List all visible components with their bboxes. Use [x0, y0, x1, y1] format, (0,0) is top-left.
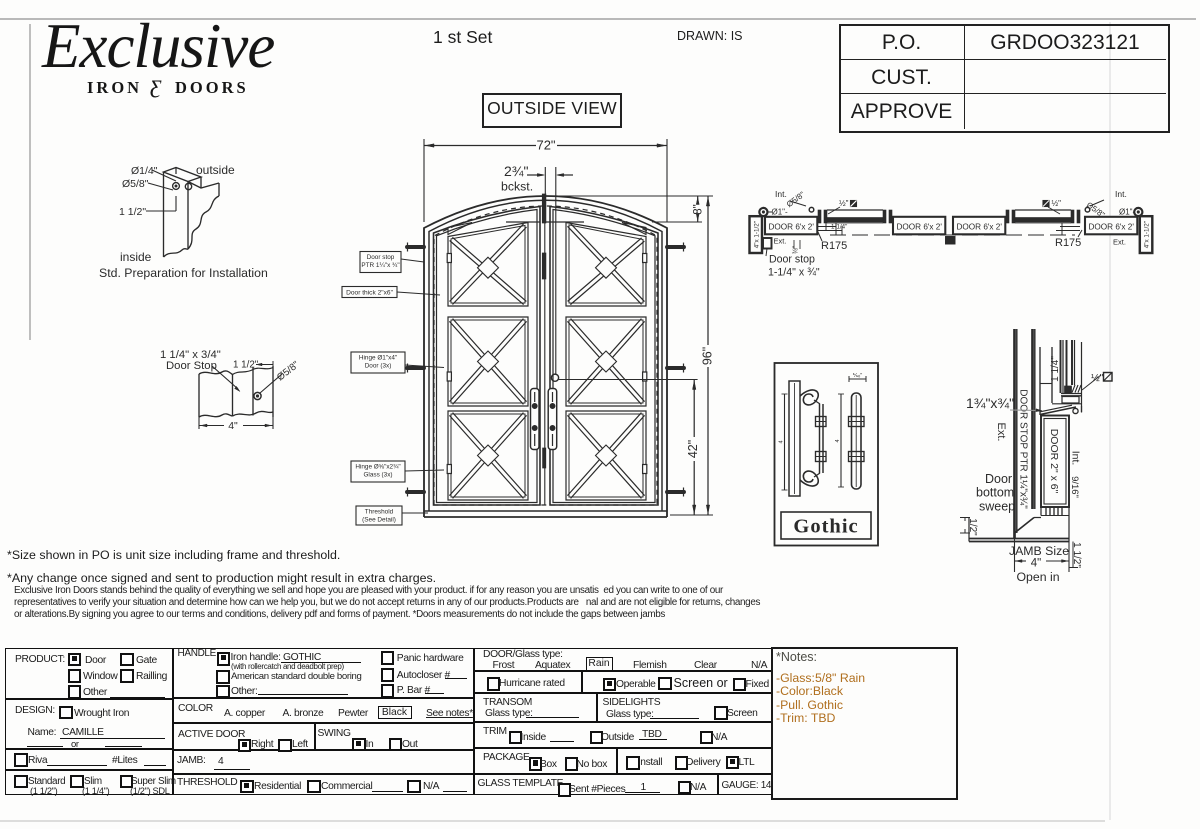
svg-text:½": ½" [839, 199, 849, 208]
svg-text:1 1/4": 1 1/4" [1050, 356, 1061, 382]
svg-text:sweep: sweep [979, 500, 1015, 514]
svg-text:1 1/2": 1 1/2" [119, 206, 146, 218]
svg-text:Door: Door [985, 472, 1012, 486]
svg-text:Hinge Ø⅝"x2¾": Hinge Ø⅝"x2¾" [355, 464, 400, 471]
svg-text:Door stop: Door stop [367, 254, 395, 261]
svg-text:Ext.: Ext. [774, 237, 787, 246]
svg-text:4: 4 [835, 439, 841, 442]
svg-text:4": 4" [1031, 558, 1041, 570]
svg-text:9/16": 9/16" [1069, 476, 1080, 498]
svg-text:DOOR 6'x 2': DOOR 6'x 2' [1088, 222, 1134, 231]
svg-text:DOOR 6'x 2': DOOR 6'x 2' [956, 222, 1002, 231]
svg-text:Gothic: Gothic [793, 516, 858, 538]
svg-text:Ø1"-: Ø1"- [772, 208, 789, 217]
svg-text:Ext.: Ext. [995, 423, 1007, 442]
svg-text:Door Stop: Door Stop [166, 360, 217, 372]
svg-text:Hinge Ø1"x4": Hinge Ø1"x4" [359, 355, 397, 362]
svg-text:Open in: Open in [1016, 570, 1059, 584]
svg-text:72": 72" [536, 138, 555, 153]
svg-text:bottom: bottom [976, 486, 1014, 500]
svg-text:Threshold: Threshold [365, 509, 394, 516]
svg-text:Ø5/8": Ø5/8" [785, 190, 807, 209]
svg-text:Ø1/4": Ø1/4" [131, 165, 158, 177]
svg-text:2¾": 2¾" [504, 163, 528, 179]
svg-text:DOOR 2" x 6": DOOR 2" x 6" [1048, 429, 1060, 494]
svg-text:Int.: Int. [1115, 189, 1127, 199]
svg-text:4"x 1-1/2": 4"x 1-1/2" [753, 221, 760, 248]
svg-text:Door (3x): Door (3x) [365, 363, 392, 370]
svg-text:4": 4" [228, 420, 238, 432]
svg-text:DOOR 6'x 2': DOOR 6'x 2' [768, 222, 814, 231]
svg-text:Std. Preparation for Installat: Std. Preparation for Installation [99, 266, 268, 280]
svg-text:PTR 1¼"x ¾": PTR 1¼"x ¾" [361, 262, 399, 269]
svg-text:R175: R175 [1055, 237, 1081, 249]
svg-text:Ext.: Ext. [1113, 238, 1126, 247]
svg-text:Door stop: Door stop [769, 254, 815, 266]
svg-text:1-1/4": 1-1/4" [831, 224, 847, 231]
svg-text:Ø5/8": Ø5/8" [122, 178, 149, 190]
svg-text:DOOR 6'x 2': DOOR 6'x 2' [896, 222, 942, 231]
svg-text:bckst.: bckst. [501, 180, 533, 194]
svg-text:Ø5/8": Ø5/8" [275, 359, 302, 383]
svg-text:R175: R175 [821, 240, 847, 252]
svg-text:Int.: Int. [1070, 451, 1082, 466]
svg-text:JAMB Size: JAMB Size [1009, 544, 1069, 558]
svg-text:96": 96" [701, 347, 715, 365]
svg-text:DOOR STOP PTR 1¼"x¾": DOOR STOP PTR 1¼"x¾" [1018, 389, 1030, 509]
svg-text:1-1/4" x ¾": 1-1/4" x ¾" [768, 267, 820, 279]
svg-text:1 1/2": 1 1/2" [233, 360, 259, 371]
svg-text:(See Detail): (See Detail) [362, 517, 396, 524]
svg-text:inside: inside [120, 250, 152, 264]
svg-text:42": 42" [686, 440, 700, 458]
svg-text:8": 8" [693, 204, 705, 214]
svg-text:⅒″: ⅒″ [853, 373, 863, 379]
svg-text:outside: outside [196, 163, 235, 177]
svg-text:Int.: Int. [775, 189, 787, 199]
svg-text:4: 4 [779, 440, 785, 443]
svg-text:Ø1"-: Ø1"- [1119, 208, 1136, 217]
svg-text:½": ½" [1052, 199, 1062, 208]
svg-text:4"x 1-1/2": 4"x 1-1/2" [1144, 221, 1151, 248]
svg-text:Glass (3x): Glass (3x) [363, 472, 392, 479]
svg-text:1¾"x¾": 1¾"x¾" [966, 395, 1014, 411]
svg-text:Door thick 2"x6": Door thick 2"x6" [346, 289, 393, 296]
